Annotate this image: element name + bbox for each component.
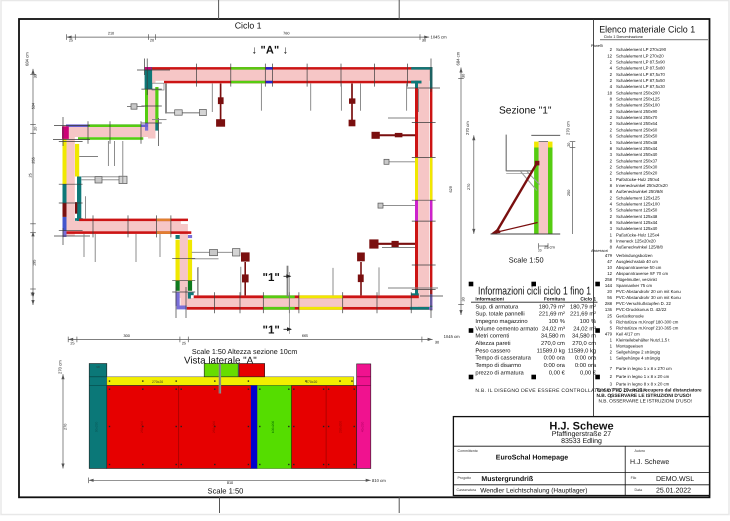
svg-text:Schalelement LP 87,5x30: Schalelement LP 87,5x30 xyxy=(616,84,666,89)
svg-text:Schalelement 250x125: Schalelement 250x125 xyxy=(616,97,660,102)
svg-text:PVC-Verschlußstopfen D. 22: PVC-Verschlußstopfen D. 22 xyxy=(616,301,672,306)
svg-text:760: 760 xyxy=(283,31,289,35)
svg-text:Mustergrundriß: Mustergrundriß xyxy=(481,475,533,483)
svg-text:100x200: 100x200 xyxy=(271,421,275,433)
svg-text:Schalelement 250x30: Schalelement 250x30 xyxy=(616,164,658,169)
svg-text:25: 25 xyxy=(31,292,35,296)
svg-text:Peso cassero: Peso cassero xyxy=(475,348,510,354)
svg-text:Schalelement 125x40: Schalelement 125x40 xyxy=(616,226,658,231)
svg-text:270: 270 xyxy=(467,184,471,190)
svg-text:20: 20 xyxy=(538,249,542,253)
svg-text:34,580 m: 34,580 m xyxy=(572,333,596,340)
svg-text:83533 Edling: 83533 Edling xyxy=(561,437,602,445)
svg-text:11589,0 kg: 11589,0 kg xyxy=(537,347,565,354)
svg-text:270x20: 270x20 xyxy=(306,380,317,384)
svg-text:Sezione "1": Sezione "1" xyxy=(499,106,552,117)
svg-text:288: 288 xyxy=(605,301,613,306)
svg-text:Informazioni cicli ciclo 1 fi: Informazioni cicli ciclo 1 fino 1 xyxy=(478,285,591,297)
svg-text:Autore: Autore xyxy=(635,449,646,453)
svg-text:30: 30 xyxy=(462,297,466,301)
svg-text:Schalelement 125x48: Schalelement 125x48 xyxy=(616,214,658,219)
svg-text:Scale 1:50: Scale 1:50 xyxy=(208,487,244,496)
svg-text:136: 136 xyxy=(605,307,613,312)
svg-text:Elenco materiale Ciclo 1: Elenco materiale Ciclo 1 xyxy=(599,24,695,35)
svg-text:24,02 m³: 24,02 m³ xyxy=(573,325,596,332)
svg-text:Schalelement LP 87,5x80: Schalelement LP 87,5x80 xyxy=(616,66,666,71)
svg-text:Schalelement LP 270x20: Schalelement LP 270x20 xyxy=(616,53,664,58)
svg-text:Committente: Committente xyxy=(458,449,478,453)
svg-text:Parte in legno 1 x 8 x 270 cm: Parte in legno 1 x 8 x 270 cm xyxy=(616,366,672,371)
svg-text:Altezza pareti: Altezza pareti xyxy=(475,340,510,347)
svg-text:Schalelement 250x37: Schalelement 250x37 xyxy=(616,158,658,163)
svg-text:56: 56 xyxy=(607,295,612,300)
svg-text:Gerüstkonsole: Gerüstkonsole xyxy=(616,313,644,318)
svg-text:270,0 cm: 270,0 cm xyxy=(541,340,565,347)
svg-text:684 cm: 684 cm xyxy=(25,52,30,66)
svg-text:Informazioni: Informazioni xyxy=(475,297,504,303)
svg-text:810: 810 xyxy=(227,481,233,485)
svg-text:Sup. di armatura: Sup. di armatura xyxy=(475,303,519,310)
svg-text:258: 258 xyxy=(605,277,613,282)
svg-text:25: 25 xyxy=(29,173,33,177)
svg-text:File: File xyxy=(631,476,637,480)
svg-text:Schalelement LP 87,5x90: Schalelement LP 87,5x90 xyxy=(616,60,666,65)
svg-text:Außeneckwinkel 250/8/8: Außeneckwinkel 250/8/8 xyxy=(616,189,663,194)
svg-text:180,79 m²: 180,79 m² xyxy=(570,303,596,310)
svg-text:144: 144 xyxy=(605,283,613,288)
svg-text:Schalelement LP 270x190: Schalelement LP 270x190 xyxy=(616,47,667,52)
svg-text:Schalelement 250x48: Schalelement 250x48 xyxy=(616,140,658,145)
svg-text:1045 cm: 1045 cm xyxy=(444,334,461,339)
svg-text:270 cm: 270 cm xyxy=(58,360,63,374)
svg-text:270 cm: 270 cm xyxy=(566,121,571,135)
svg-text:270 cm: 270 cm xyxy=(465,121,470,135)
svg-text:Data: Data xyxy=(635,488,643,492)
svg-text:50x250: 50x250 xyxy=(95,422,99,433)
svg-text:0,00 €: 0,00 € xyxy=(580,369,597,376)
svg-text:Richtstütze m.Knopf 210-365 cm: Richtstütze m.Knopf 210-365 cm xyxy=(616,325,679,330)
svg-text:25: 25 xyxy=(607,313,612,318)
svg-text:Schalelement 250x70: Schalelement 250x70 xyxy=(616,115,658,120)
svg-text:Inneneck 125x20x20: Inneneck 125x20x20 xyxy=(616,239,656,244)
svg-text:PVC-Druckkonus D. 42/22: PVC-Druckkonus D. 42/22 xyxy=(616,307,667,312)
svg-text:270x20: 270x20 xyxy=(152,380,163,384)
svg-text:Progetto: Progetto xyxy=(458,476,472,480)
svg-text:Schalelement LP 87,5x70: Schalelement LP 87,5x70 xyxy=(616,72,666,77)
svg-text:Panelli: Panelli xyxy=(591,43,603,48)
svg-text:18: 18 xyxy=(607,90,612,95)
svg-text:PVC-Abstandrohr 20 cm mit Konu: PVC-Abstandrohr 20 cm mit Konu xyxy=(616,289,681,294)
svg-text:250x200: 250x200 xyxy=(339,421,343,433)
svg-text:250x200: 250x200 xyxy=(140,421,144,433)
svg-text:Wendler Leichtschalung (Hauptl: Wendler Leichtschalung (Hauptlager) xyxy=(480,488,587,495)
svg-text:24,02 m³: 24,02 m³ xyxy=(542,325,565,332)
svg-text:210: 210 xyxy=(108,31,114,35)
svg-text:Ausgleichsstab 40 cm: Ausgleichsstab 40 cm xyxy=(616,259,658,264)
svg-text:Schalelement 125x100: Schalelement 125x100 xyxy=(616,201,660,206)
svg-text:Schalelement 125x44: Schalelement 125x44 xyxy=(616,220,658,225)
svg-text:Außeneckwinkel 125/8/8: Außeneckwinkel 125/8/8 xyxy=(616,245,663,250)
svg-text:0:00 ora: 0:00 ora xyxy=(544,362,566,369)
svg-text:100 %: 100 % xyxy=(580,318,596,325)
svg-text:Kleinteilebehälter Nutzl.1,5 t: Kleinteilebehälter Nutzl.1,5 t xyxy=(616,338,670,343)
svg-text:250: 250 xyxy=(567,190,571,196)
svg-text:Schalelement 250x20: Schalelement 250x20 xyxy=(616,171,658,176)
svg-text:Tempo di casseratura: Tempo di casseratura xyxy=(475,355,531,362)
svg-text:Ciclo 1 Denominazione: Ciclo 1 Denominazione xyxy=(604,35,643,39)
svg-text:270: 270 xyxy=(64,424,68,430)
svg-text:0:00 ora: 0:00 ora xyxy=(575,362,597,369)
svg-text:Abspanntraverse SF 70 cm: Abspanntraverse SF 70 cm xyxy=(616,271,668,276)
svg-text:684 cm: 684 cm xyxy=(456,51,461,65)
svg-text:Sup. totale pannelli: Sup. totale pannelli xyxy=(475,311,524,318)
svg-text:Ciclo 1: Ciclo 1 xyxy=(235,20,262,30)
svg-text:Scale 1:50: Scale 1:50 xyxy=(509,256,544,265)
svg-text:Schalelement LP 87,5x50: Schalelement LP 87,5x50 xyxy=(616,78,666,83)
svg-text:Parte in legno 1 x 8 x 20 cm: Parte in legno 1 x 8 x 20 cm xyxy=(616,374,670,379)
svg-text:Schalelement 125x125: Schalelement 125x125 xyxy=(616,195,660,200)
svg-text:Schalelement 250x44: Schalelement 250x44 xyxy=(616,146,658,151)
svg-text:665: 665 xyxy=(302,334,308,338)
svg-text:20: 20 xyxy=(607,289,612,294)
svg-text:0:00 ora: 0:00 ora xyxy=(575,355,597,362)
svg-text:Seilgehänge 4 strängig: Seilgehänge 4 strängig xyxy=(616,356,661,361)
svg-text:25.01.2022: 25.01.2022 xyxy=(656,488,691,495)
svg-text:255: 255 xyxy=(32,157,36,163)
svg-text:30: 30 xyxy=(34,74,38,78)
svg-text:Spannanker 75 cm: Spannanker 75 cm xyxy=(616,283,652,288)
svg-text:100 %: 100 % xyxy=(548,318,564,325)
svg-text:25 cm: 25 cm xyxy=(544,245,556,250)
svg-text:N.B. OSSERVARE LE ISTRUZIONI D: N.B. OSSERVARE LE ISTRUZIONI D’USO! xyxy=(597,393,692,399)
svg-text:180,79 m²: 180,79 m² xyxy=(539,303,565,310)
svg-text:↓ "A" ↓: ↓ "A" ↓ xyxy=(252,45,289,57)
svg-text:10: 10 xyxy=(607,265,612,270)
svg-text:0:00 ora: 0:00 ora xyxy=(544,355,566,362)
svg-text:Inneneckwinkel 250x20x20: Inneneckwinkel 250x20x20 xyxy=(616,183,668,188)
svg-text:Schalelement 250x40: Schalelement 250x40 xyxy=(616,152,658,157)
svg-text:Casseratura: Casseratura xyxy=(457,488,477,492)
svg-text:810 cm: 810 cm xyxy=(372,478,386,483)
svg-text:25: 25 xyxy=(70,341,74,345)
svg-text:1045 cm: 1045 cm xyxy=(431,34,448,39)
svg-text:Impegno magazzino: Impegno magazzino xyxy=(475,318,527,325)
svg-text:Schalelement 250x64: Schalelement 250x64 xyxy=(616,121,658,126)
svg-text:Metri correnti: Metri correnti xyxy=(475,333,509,340)
svg-text:H.J. Schewe: H.J. Schewe xyxy=(630,458,669,466)
svg-text:Paßstücke-Holz 250x4: Paßstücke-Holz 250x4 xyxy=(616,177,660,182)
svg-text:Schalelement 250x100: Schalelement 250x100 xyxy=(616,103,660,108)
svg-text:Schalelement 250x50: Schalelement 250x50 xyxy=(616,134,658,139)
svg-text:Pfaffingerstraße 27: Pfaffingerstraße 27 xyxy=(552,430,612,438)
svg-text:479: 479 xyxy=(605,331,613,336)
svg-text:12: 12 xyxy=(607,53,612,58)
svg-text:Schalelement 125x50: Schalelement 125x50 xyxy=(616,208,658,213)
svg-text:Schalelement 250x60: Schalelement 250x60 xyxy=(616,127,658,132)
svg-text:221,69 m²: 221,69 m² xyxy=(570,311,596,318)
svg-text:Schalelement 250x90: Schalelement 250x90 xyxy=(616,109,658,114)
svg-text:250x200: 250x200 xyxy=(212,421,216,433)
svg-text:Parte in legno 8 x 8 x 20 cm: Parte in legno 8 x 8 x 20 cm xyxy=(616,381,670,386)
svg-text:"1": "1" xyxy=(263,325,280,337)
svg-text:30: 30 xyxy=(462,74,466,78)
svg-text:Tubi in PVC 20 cm di recupero: Tubi in PVC 20 cm di recupero dal distan… xyxy=(596,388,702,393)
svg-text:DEMO.WSL: DEMO.WSL xyxy=(656,476,694,483)
svg-text:Volume cemento armato: Volume cemento armato xyxy=(475,325,538,332)
svg-text:N.B. OSSERVARE LE ISTRUZIONI D: N.B. OSSERVARE LE ISTRUZIONI D’USO! xyxy=(599,398,692,404)
svg-text:Seilgehänge 2 strängig: Seilgehänge 2 strängig xyxy=(616,350,661,355)
svg-text:prezzo di armatura: prezzo di armatura xyxy=(475,369,524,376)
svg-text:270,0 cm: 270,0 cm xyxy=(572,340,596,347)
svg-text:221,69 m²: 221,69 m² xyxy=(539,311,565,318)
svg-text:25: 25 xyxy=(69,39,73,43)
svg-text:0,00 €: 0,00 € xyxy=(549,369,566,376)
svg-text:34,580 m: 34,580 m xyxy=(541,333,565,340)
svg-text:20: 20 xyxy=(567,143,571,147)
svg-text:Montageeisen: Montageeisen xyxy=(616,344,644,349)
svg-text:534: 534 xyxy=(32,103,36,109)
svg-text:Tempo di disarmo: Tempo di disarmo xyxy=(475,362,521,369)
svg-text:629: 629 xyxy=(449,186,453,192)
svg-text:11589,0 kg: 11589,0 kg xyxy=(568,347,596,354)
svg-text:20: 20 xyxy=(150,39,154,43)
svg-text:20: 20 xyxy=(34,127,38,131)
svg-text:Richtstütze m.Knopf 180-300 cm: Richtstütze m.Knopf 180-300 cm xyxy=(616,319,679,324)
svg-text:300: 300 xyxy=(124,334,130,338)
svg-text:Flügelmutter, verzinkt: Flügelmutter, verzinkt xyxy=(616,277,658,282)
svg-text:Ciclo 1: Ciclo 1 xyxy=(580,297,596,303)
svg-text:47: 47 xyxy=(607,259,612,264)
svg-text:Schalelement 250x200: Schalelement 250x200 xyxy=(616,90,660,95)
svg-text:EuroSchal Homepage: EuroSchal Homepage xyxy=(496,453,568,461)
svg-text:195: 195 xyxy=(33,260,37,266)
svg-text:Fornitura: Fornitura xyxy=(544,297,565,303)
svg-text:40x250: 40x250 xyxy=(361,422,365,433)
svg-text:30: 30 xyxy=(422,39,426,43)
svg-text:Verbindungsbolzen: Verbindungsbolzen xyxy=(616,253,653,258)
svg-text:"1": "1" xyxy=(263,272,280,284)
svg-text:Abspanntraverse 50 cm: Abspanntraverse 50 cm xyxy=(616,265,662,270)
svg-text:50: 50 xyxy=(97,365,101,369)
svg-text:12: 12 xyxy=(607,271,612,276)
svg-text:Keil 4/17 cm: Keil 4/17 cm xyxy=(616,331,640,336)
svg-text:PVC-Abstandrohr 30 cm mit Konu: PVC-Abstandrohr 30 cm mit Konu xyxy=(616,295,681,300)
svg-text:Paßstücke-Holz 125x4: Paßstücke-Holz 125x4 xyxy=(616,232,660,237)
svg-text:25: 25 xyxy=(182,341,186,345)
svg-text:479: 479 xyxy=(605,253,613,258)
svg-text:30: 30 xyxy=(435,341,439,345)
